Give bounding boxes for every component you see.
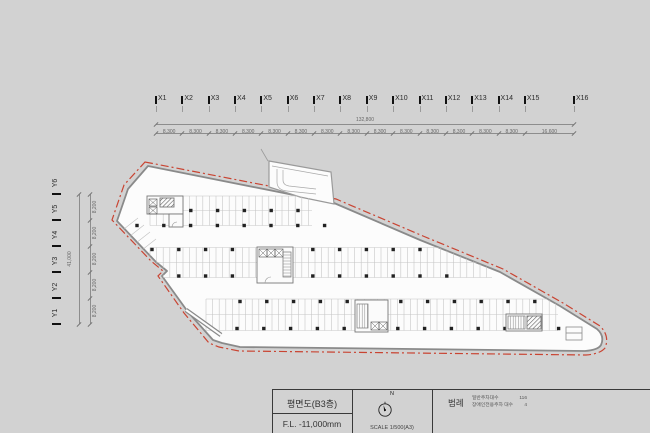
- x-seg-dim-text: 8,300: [366, 129, 394, 135]
- grid-label-x7: X7: [316, 95, 325, 103]
- grid-label-y4: Y4: [52, 225, 62, 245]
- grid-tick-x: [260, 96, 262, 104]
- legend-item-value: 116: [505, 396, 527, 402]
- grid-tick-y: [52, 297, 61, 299]
- dim-tick: [572, 122, 577, 127]
- grid-extension-x: [288, 106, 289, 112]
- grid-extension-x: [182, 106, 183, 112]
- y-seg-dim-text: 8,200: [92, 245, 98, 273]
- x-seg-dim-text: 8,300: [155, 129, 183, 135]
- y-total-dim-line: [79, 194, 80, 324]
- titleblock-divider-3: [432, 389, 433, 433]
- y-seg-dim-line: [90, 194, 91, 324]
- grid-extension-x: [261, 106, 262, 112]
- grid-extension-x: [499, 106, 500, 112]
- floor-level: F.L. -11,000mm: [272, 419, 352, 429]
- grid-tick-y: [52, 219, 61, 221]
- grid-tick-x: [419, 96, 421, 104]
- grid-tick-x: [208, 96, 210, 104]
- y-seg-dim-text: 8,200: [92, 297, 98, 325]
- grid-tick-x: [445, 96, 447, 104]
- grid-extension-x: [393, 106, 394, 112]
- grid-extension-x: [446, 106, 447, 112]
- grid-extension-x: [574, 106, 575, 112]
- x-seg-dim-text: 16,600: [535, 129, 563, 135]
- grid-label-x15: X15: [527, 95, 539, 103]
- grid-tick-y: [52, 245, 61, 247]
- grid-tick-x: [366, 96, 368, 104]
- grid-label-x5: X5: [263, 95, 272, 103]
- grid-tick-x: [234, 96, 236, 104]
- grid-extension-x: [420, 106, 421, 112]
- x-seg-dim-text: 8,300: [261, 129, 289, 135]
- grid-tick-x: [313, 96, 315, 104]
- grid-tick-y: [52, 193, 61, 195]
- grid-label-x16: X16: [576, 95, 588, 103]
- x-seg-dim-text: 8,300: [392, 129, 420, 135]
- grid-label-x1: X1: [158, 95, 167, 103]
- x-seg-dim-text: 8,300: [313, 129, 341, 135]
- grid-label-y2: Y2: [52, 277, 62, 297]
- grid-extension-x: [367, 106, 368, 112]
- grid-tick-x: [287, 96, 289, 104]
- grid-tick-x: [155, 96, 157, 104]
- x-total-dim-text: 132,800: [345, 117, 385, 123]
- grid-label-x14: X14: [501, 95, 513, 103]
- titleblock-cell1-divider: [272, 413, 352, 414]
- grid-tick-y: [52, 323, 61, 325]
- x-seg-dim-text: 8,300: [287, 129, 315, 135]
- x-seg-dim-text: 8,300: [419, 129, 447, 135]
- x-seg-dim-text: 8,300: [182, 129, 210, 135]
- grid-extension-x: [209, 106, 210, 112]
- grid-label-x12: X12: [448, 95, 460, 103]
- grid-extension-x: [340, 106, 341, 112]
- grid-tick-x: [524, 96, 526, 104]
- dim-tick: [572, 131, 577, 136]
- legend-item-value: 4: [505, 403, 527, 409]
- grid-label-x3: X3: [211, 95, 220, 103]
- grid-label-y5: Y5: [52, 199, 62, 219]
- grid-tick-x: [392, 96, 394, 104]
- x-seg-dim-text: 8,300: [208, 129, 236, 135]
- grid-tick-x: [498, 96, 500, 104]
- grid-label-x8: X8: [342, 95, 351, 103]
- grid-label-y6: Y6: [52, 173, 62, 193]
- drawing-sheet: X1X2X3X4X5X6X7X8X9X10X11X12X13X14X15X161…: [0, 0, 650, 433]
- grid-tick-y: [52, 271, 61, 273]
- x-seg-dim-text: 8,300: [445, 129, 473, 135]
- x-total-dim-line: [156, 124, 574, 125]
- scale-label: SCALE 1/500(A3): [352, 425, 432, 431]
- north-label: N: [352, 391, 432, 397]
- legend-item-label: 일반주차대수: [472, 396, 498, 402]
- grid-extension-x: [314, 106, 315, 112]
- y-seg-dim-text: 8,200: [92, 193, 98, 221]
- grid-label-x2: X2: [184, 95, 193, 103]
- grid-tick-x: [471, 96, 473, 104]
- grid-label-y3: Y3: [52, 251, 62, 271]
- x-seg-dim-text: 8,300: [471, 129, 499, 135]
- grid-label-x4: X4: [237, 95, 246, 103]
- grid-label-x10: X10: [395, 95, 407, 103]
- grid-annotations: X1X2X3X4X5X6X7X8X9X10X11X12X13X14X15X161…: [0, 0, 650, 433]
- x-seg-dim-text: 8,300: [498, 129, 526, 135]
- y-total-dim-text: 41,000: [67, 245, 73, 273]
- grid-tick-x: [339, 96, 341, 104]
- grid-label-y1: Y1: [52, 303, 62, 323]
- grid-tick-x: [181, 96, 183, 104]
- legend-title: 범례: [448, 397, 464, 409]
- grid-tick-x: [573, 96, 575, 104]
- grid-label-x6: X6: [290, 95, 299, 103]
- grid-label-x13: X13: [474, 95, 486, 103]
- grid-extension-x: [525, 106, 526, 112]
- x-seg-dim-text: 8,300: [234, 129, 262, 135]
- drawing-title: 평면도(B3층): [272, 397, 352, 410]
- dim-tick: [77, 322, 82, 327]
- y-seg-dim-text: 8,200: [92, 271, 98, 299]
- grid-extension-x: [472, 106, 473, 112]
- grid-label-x11: X11: [422, 95, 434, 103]
- north-arrow-icon: [377, 401, 393, 417]
- grid-extension-x: [156, 106, 157, 112]
- titleblock-top-border: [272, 389, 650, 390]
- grid-extension-x: [235, 106, 236, 112]
- y-seg-dim-text: 8,200: [92, 219, 98, 247]
- x-seg-dim-text: 8,300: [340, 129, 368, 135]
- grid-label-x9: X9: [369, 95, 378, 103]
